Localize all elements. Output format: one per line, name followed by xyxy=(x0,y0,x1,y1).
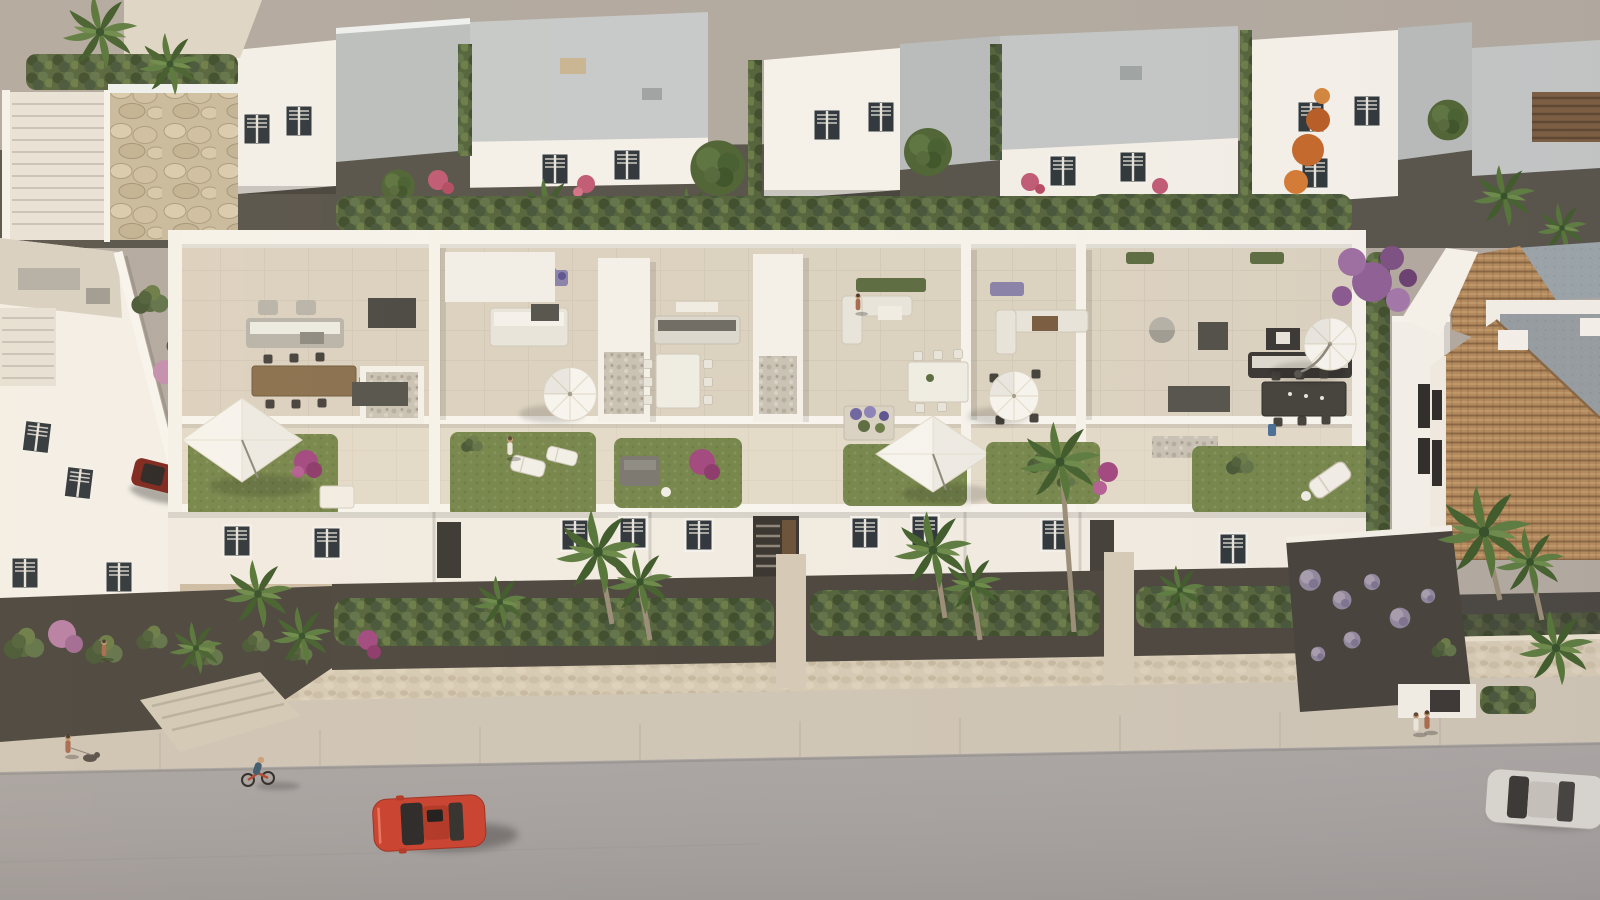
render-canvas xyxy=(0,0,1600,900)
scene-aerial-render xyxy=(0,0,1600,900)
sunlight-overlay xyxy=(0,0,1600,900)
